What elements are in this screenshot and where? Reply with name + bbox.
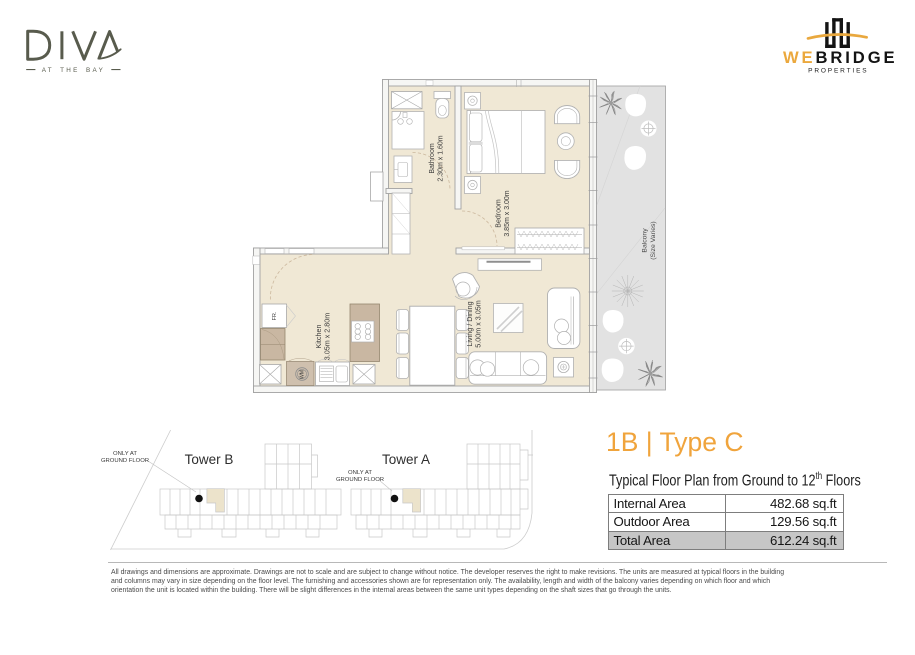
svg-text:Bedroom: Bedroom <box>496 199 503 228</box>
svg-text:GROUND FLOOR: GROUND FLOOR <box>101 458 149 464</box>
svg-text:WM: WM <box>300 370 306 379</box>
svg-text:5.00m x 3.05m: 5.00m x 3.05m <box>474 300 483 348</box>
svg-text:Living / Dining: Living / Dining <box>465 301 474 346</box>
svg-text:3.05m x 2.80m: 3.05m x 2.80m <box>323 313 332 361</box>
svg-text:ONLY AT: ONLY AT <box>348 470 372 476</box>
svg-text:PROPERTIES: PROPERTIES <box>808 68 868 75</box>
svg-text:Balcony: Balcony <box>642 228 649 253</box>
svg-text:GROUND FLOOR: GROUND FLOOR <box>336 477 384 483</box>
svg-text:Bathroom: Bathroom <box>429 143 436 174</box>
svg-text:Tower A: Tower A <box>382 452 430 467</box>
svg-text:(Size Varies): (Size Varies) <box>650 221 657 259</box>
svg-text:Tower B: Tower B <box>185 452 234 467</box>
svg-text:3.85m x 3.00m: 3.85m x 3.00m <box>504 190 511 236</box>
svg-text:AT THE BAY: AT THE BAY <box>42 67 105 74</box>
svg-text:2.30m x 1.60m: 2.30m x 1.60m <box>438 135 445 181</box>
svg-text:Kitchen: Kitchen <box>314 325 323 349</box>
svg-text:ONLY AT: ONLY AT <box>113 451 137 457</box>
svg-text:FR.: FR. <box>272 311 278 320</box>
svg-text:WEBRIDGE: WEBRIDGE <box>783 48 897 67</box>
